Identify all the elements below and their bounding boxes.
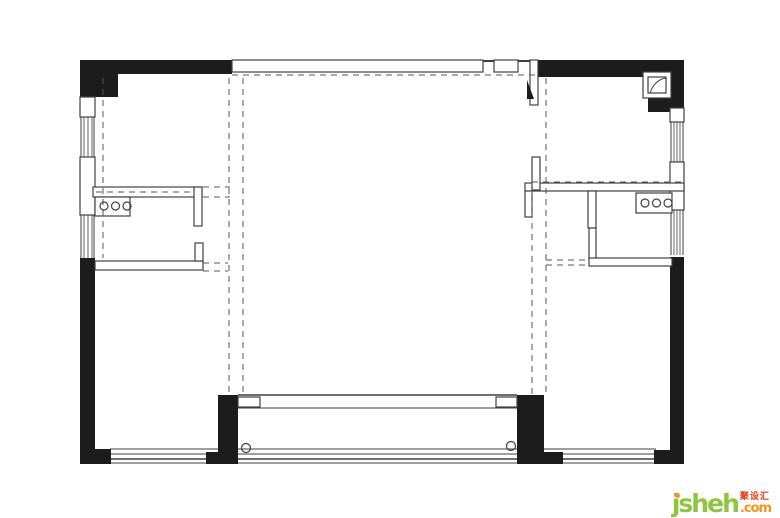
wall-column	[206, 452, 218, 464]
wall-outline	[232, 60, 483, 72]
wall-outline	[496, 397, 517, 407]
watermark-j-dot-icon	[675, 493, 680, 498]
wall-column	[654, 450, 670, 464]
wall-outline	[532, 157, 540, 190]
wall-outline	[238, 397, 260, 407]
fixture-circle	[242, 444, 251, 453]
watermark-right-block: 聚设汇 .com	[740, 493, 771, 515]
wall-outline	[95, 261, 203, 270]
watermark-brand-text: jsheh	[672, 493, 738, 516]
floor-plan	[0, 0, 780, 518]
wall-outline	[525, 191, 532, 217]
wall-column	[95, 449, 111, 464]
wall-outline	[588, 191, 596, 228]
wall-outline	[494, 60, 518, 72]
wall-column	[80, 258, 95, 464]
wall-column	[517, 395, 544, 464]
wall-outline	[195, 243, 203, 261]
wall-column	[218, 395, 238, 464]
wall-outline	[80, 97, 95, 117]
wall-outline	[80, 157, 95, 215]
watermark-tld-text: .com	[740, 502, 771, 515]
wall-outline	[589, 228, 596, 260]
watermark-logo: jsheh 聚设汇 .com	[672, 493, 771, 516]
wall-outline	[589, 258, 672, 266]
wall-outline	[194, 187, 202, 226]
wall-column	[670, 257, 684, 464]
wall-column	[544, 452, 563, 464]
wall-outline	[670, 108, 684, 122]
wall-outline	[525, 183, 684, 191]
wall-column	[80, 60, 118, 97]
plan-image	[0, 0, 780, 518]
